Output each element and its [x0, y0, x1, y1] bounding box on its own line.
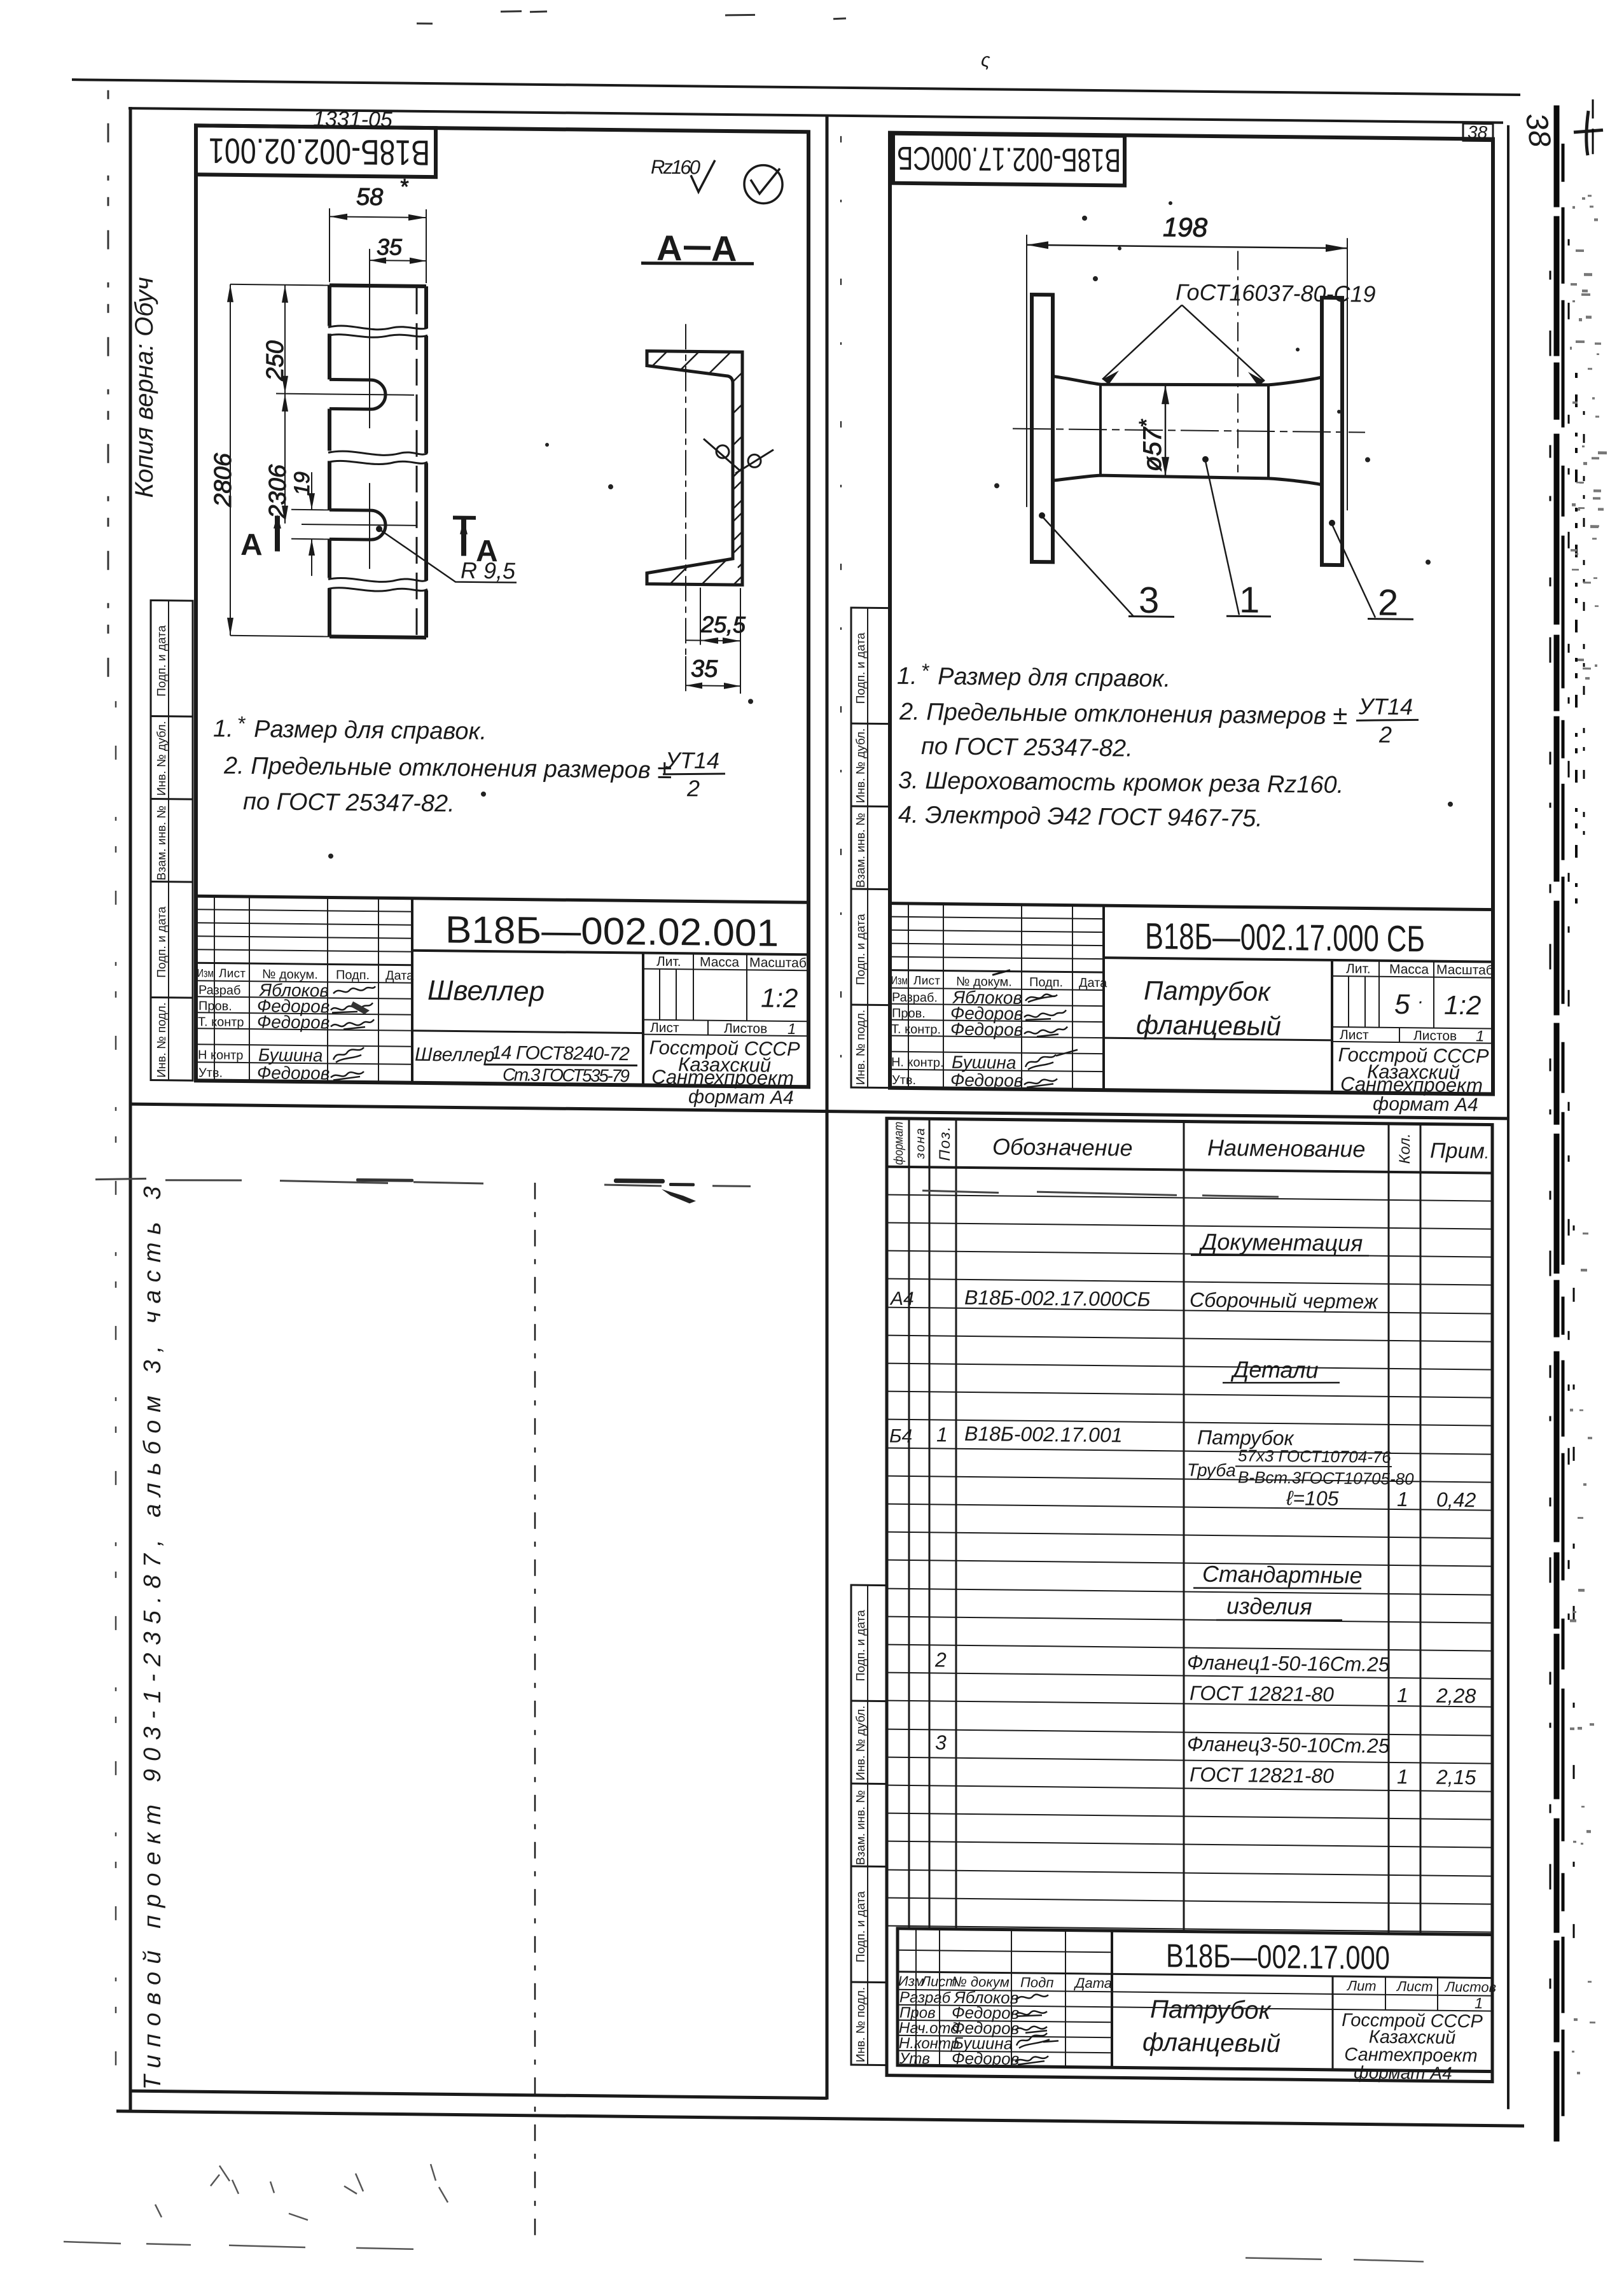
svg-text:2: 2: [686, 775, 700, 801]
svg-text:Федоров: Федоров: [952, 2049, 1019, 2069]
svg-text:Т. контр: Т. контр: [198, 1015, 244, 1030]
svg-text:5: 5: [1394, 989, 1410, 1020]
svg-text:Обозначение: Обозначение: [992, 1133, 1133, 1161]
svg-text:В18Б-002.17.000СБ: В18Б-002.17.000СБ: [964, 1286, 1151, 1311]
svg-text:Документация: Документация: [1198, 1229, 1363, 1257]
svg-text:зона: зона: [913, 1128, 927, 1159]
svg-text:25,5: 25,5: [700, 611, 746, 638]
svg-text:В18Б-002.02.001: В18Б-002.02.001: [209, 130, 430, 173]
svg-text:Пров.: Пров.: [198, 999, 232, 1014]
svg-text:35: 35: [377, 234, 403, 260]
svg-text:Подп.: Подп.: [1029, 975, 1063, 990]
svg-text:Детали: Детали: [1230, 1356, 1318, 1383]
svg-text:Прим.: Прим.: [1430, 1139, 1489, 1164]
svg-text:1:2: 1:2: [1444, 990, 1481, 1021]
svg-text:изделия: изделия: [1226, 1593, 1312, 1619]
svg-text:2: 2: [1378, 582, 1398, 624]
svg-text:58: 58: [356, 184, 383, 211]
svg-text:Дата: Дата: [1079, 976, 1107, 990]
svg-text:*: *: [399, 175, 409, 199]
svg-text:2306: 2306: [265, 464, 291, 519]
svg-text:Инв. № дубл.: Инв. № дубл.: [854, 728, 868, 803]
svg-text:ς: ς: [981, 50, 990, 71]
svg-text:R 9,5: R 9,5: [461, 557, 516, 584]
svg-text:250: 250: [262, 340, 289, 382]
svg-text:Федоров: Федоров: [950, 1019, 1023, 1040]
svg-text:ГоСТ16037-80-С19: ГоСТ16037-80-С19: [1176, 279, 1376, 307]
svg-text:Сантехпроект: Сантехпроект: [1340, 1073, 1483, 1096]
svg-text:·: ·: [1417, 991, 1424, 1012]
svg-text:А4: А4: [889, 1288, 914, 1309]
svg-text:Листов: Листов: [1444, 1979, 1496, 1995]
svg-text:1: 1: [1239, 579, 1260, 620]
svg-text:2,15: 2,15: [1436, 1766, 1476, 1789]
svg-text:Патрубок: Патрубок: [1144, 975, 1272, 1007]
svg-text:3: 3: [1139, 580, 1159, 621]
svg-text:фланцевый: фланцевый: [1136, 1010, 1281, 1041]
svg-text:Стандартные: Стандартные: [1202, 1561, 1363, 1589]
svg-text:Лит.: Лит.: [656, 954, 681, 969]
svg-text:Б4: Б4: [889, 1426, 912, 1447]
svg-text:Листов: Листов: [1413, 1028, 1457, 1044]
svg-text:Труба: Труба: [1187, 1460, 1236, 1481]
svg-text:Сантехпроект: Сантехпроект: [651, 1066, 794, 1089]
svg-text:Утв.: Утв.: [892, 1073, 916, 1087]
svg-text:В18Б—002.17.000: В18Б—002.17.000: [1166, 1937, 1390, 1977]
svg-text:Швеллер: Швеллер: [427, 975, 545, 1007]
svg-text:Н. контр.: Н. контр.: [891, 1056, 944, 1070]
svg-text:Инв. № подл.: Инв. № подл.: [854, 1987, 868, 2063]
svg-text:Кол.: Кол.: [1396, 1133, 1413, 1164]
svg-text:3: 3: [935, 1731, 947, 1754]
svg-text:19: 19: [290, 471, 314, 496]
svg-text:35: 35: [691, 655, 718, 682]
svg-text:3. Шероховатость кромок реза: 3. Шероховатость кромок реза Rz160.: [898, 767, 1343, 799]
svg-text:Пров.: Пров.: [892, 1007, 926, 1021]
svg-text:Лист: Лист: [913, 974, 940, 988]
svg-text:Подп.: Подп.: [336, 968, 370, 983]
svg-text:Подп: Подп: [1020, 1974, 1053, 1991]
svg-text:Утв.: Утв.: [198, 1066, 223, 1080]
svg-text:Лист: Лист: [1340, 1028, 1369, 1042]
svg-text:57х3 ГОСТ10704-76: 57х3 ГОСТ10704-76: [1238, 1446, 1391, 1467]
svg-text:Лит.: Лит.: [1346, 961, 1371, 976]
svg-text:2,28: 2,28: [1436, 1684, 1476, 1708]
svg-text:Ст.3 ГОСТ535-79: Ст.3 ГОСТ535-79: [503, 1065, 630, 1086]
svg-text:Лист: Лист: [1396, 1978, 1433, 1995]
svg-text:Инв. № подл.: Инв. № подл.: [155, 1002, 169, 1078]
svg-text:Лист: Лист: [650, 1021, 679, 1035]
svg-text:Масштаб: Масштаб: [1436, 963, 1494, 978]
svg-text:1: 1: [1476, 1028, 1484, 1045]
svg-text:Rz160: Rz160: [651, 156, 700, 179]
svg-text:Подп. и дата: Подп. и дата: [155, 906, 169, 978]
svg-text:Взам. инв. №: Взам. инв. №: [854, 813, 868, 888]
svg-text:Подп. и дата: Подп. и дата: [854, 914, 868, 986]
svg-text:Сборочный чертеж: Сборочный чертеж: [1190, 1288, 1379, 1313]
svg-text:Инв. № подл.: Инв. № подл.: [854, 1010, 868, 1086]
svg-text:Дата: Дата: [1073, 1975, 1112, 1992]
svg-text:УТ14: УТ14: [1358, 693, 1413, 720]
svg-text:А: А: [240, 528, 263, 562]
svg-text:ГОСТ 12821-80: ГОСТ 12821-80: [1190, 1763, 1334, 1787]
svg-text:Инв. № дубл.: Инв. № дубл.: [155, 721, 169, 796]
svg-text:2: 2: [934, 1648, 947, 1671]
svg-text:Дата: Дата: [385, 968, 414, 982]
svg-text:Взам. инв. №: Взам. инв. №: [854, 1790, 868, 1865]
svg-text:Масса: Масса: [1389, 962, 1429, 977]
svg-text:1:2: 1:2: [761, 983, 798, 1014]
svg-text:Подп. и дата: Подп. и дата: [155, 625, 169, 697]
svg-text:1: 1: [788, 1021, 796, 1038]
svg-text:1: 1: [1475, 1995, 1483, 2012]
svg-text:Наименование: Наименование: [1207, 1135, 1365, 1162]
svg-text:УТ14: УТ14: [665, 747, 719, 774]
svg-text:Взам. инв. №: Взам. инв. №: [155, 806, 169, 881]
svg-text:В18Б-002.17.000СБ: В18Б-002.17.000СБ: [897, 139, 1121, 179]
svg-text:Лит: Лит: [1346, 1978, 1377, 1993]
svg-text:по ГОСТ 25347-82.: по ГОСТ 25347-82.: [921, 733, 1133, 762]
svg-text:Фланец1-50-16Ст.25: Фланец1-50-16Ст.25: [1187, 1651, 1390, 1676]
svg-text:1: 1: [936, 1423, 948, 1446]
svg-text:фланцевый: фланцевый: [1142, 2028, 1280, 2058]
svg-text:Утв: Утв: [899, 2050, 930, 2068]
svg-text:Разраб: Разраб: [198, 983, 240, 998]
svg-text:Федоров: Федоров: [257, 1012, 330, 1032]
svg-text:В18Б—002.17.000 СБ: В18Б—002.17.000 СБ: [1145, 916, 1425, 960]
svg-text:Подп. и дата: Подп. и дата: [854, 1891, 868, 1963]
svg-text:38: 38: [1519, 111, 1557, 149]
svg-text:Изм: Изм: [898, 1973, 924, 1989]
svg-text:1: 1: [1397, 1765, 1408, 1788]
svg-text:Листов: Листов: [724, 1021, 767, 1037]
svg-text:Лист: Лист: [219, 967, 246, 981]
svg-text:14 ГОСТ8240-72: 14 ГОСТ8240-72: [491, 1042, 630, 1065]
svg-text:В18Б-002.17.001: В18Б-002.17.001: [964, 1422, 1123, 1447]
svg-text:Изм: Изм: [891, 974, 908, 987]
svg-text:Швеллер: Швеллер: [415, 1044, 495, 1066]
svg-text:Подп. и дата: Подп. и дата: [854, 632, 868, 704]
svg-text:Типовой проект 903-1-235.87,: Типовой проект 903-1-235.87, альбом 3, ч…: [139, 1186, 166, 2090]
svg-text:Инв. № дубл.: Инв. № дубл.: [854, 1705, 868, 1780]
svg-text:ГОСТ 12821-80: ГОСТ 12821-80: [1190, 1682, 1334, 1706]
svg-text:0,42: 0,42: [1436, 1488, 1476, 1512]
svg-text:формат: формат: [892, 1122, 906, 1165]
svg-text:В18Б—002.02.001: В18Б—002.02.001: [445, 908, 779, 954]
svg-text:198: 198: [1163, 212, 1208, 242]
svg-text:ℓ=105: ℓ=105: [1286, 1486, 1339, 1510]
svg-text:Патрубок: Патрубок: [1150, 1995, 1272, 2025]
svg-text:Т. контр.: Т. контр.: [891, 1023, 941, 1037]
svg-text:4. Электрод Э42 ГОСТ 9467-75.: 4. Электрод Э42 ГОСТ 9467-75.: [898, 802, 1263, 832]
svg-text:Разраб.: Разраб.: [892, 991, 938, 1005]
svg-text:формат А4: формат А4: [1373, 1094, 1478, 1116]
svg-text:1: 1: [1397, 1684, 1408, 1707]
svg-text:Подп. и дата: Подп. и дата: [854, 1610, 868, 1682]
svg-text:по ГОСТ 25347-82.: по ГОСТ 25347-82.: [243, 788, 455, 817]
svg-text:формат А4: формат А4: [1354, 2062, 1452, 2083]
svg-text:формат А4: формат А4: [688, 1086, 794, 1108]
svg-text:В-Вст.3ГОСТ10705-80: В-Вст.3ГОСТ10705-80: [1238, 1467, 1414, 1488]
svg-text:2: 2: [1378, 722, 1392, 748]
svg-text:Н контр: Н контр: [198, 1048, 243, 1063]
svg-text:Федоров: Федоров: [950, 1070, 1023, 1091]
svg-text:1: 1: [1397, 1488, 1408, 1511]
svg-text:Изм: Изм: [197, 967, 214, 979]
svg-text:Масштаб: Масштаб: [749, 955, 807, 970]
svg-text:Копия верна: Обуч: Копия верна: Обуч: [130, 277, 158, 498]
svg-text:Федоров: Федоров: [257, 1063, 330, 1083]
svg-text:2806: 2806: [210, 452, 237, 508]
svg-text:Фланец3-50-10Ст.25: Фланец3-50-10Ст.25: [1187, 1733, 1390, 1757]
svg-text:Масса: Масса: [700, 955, 739, 970]
